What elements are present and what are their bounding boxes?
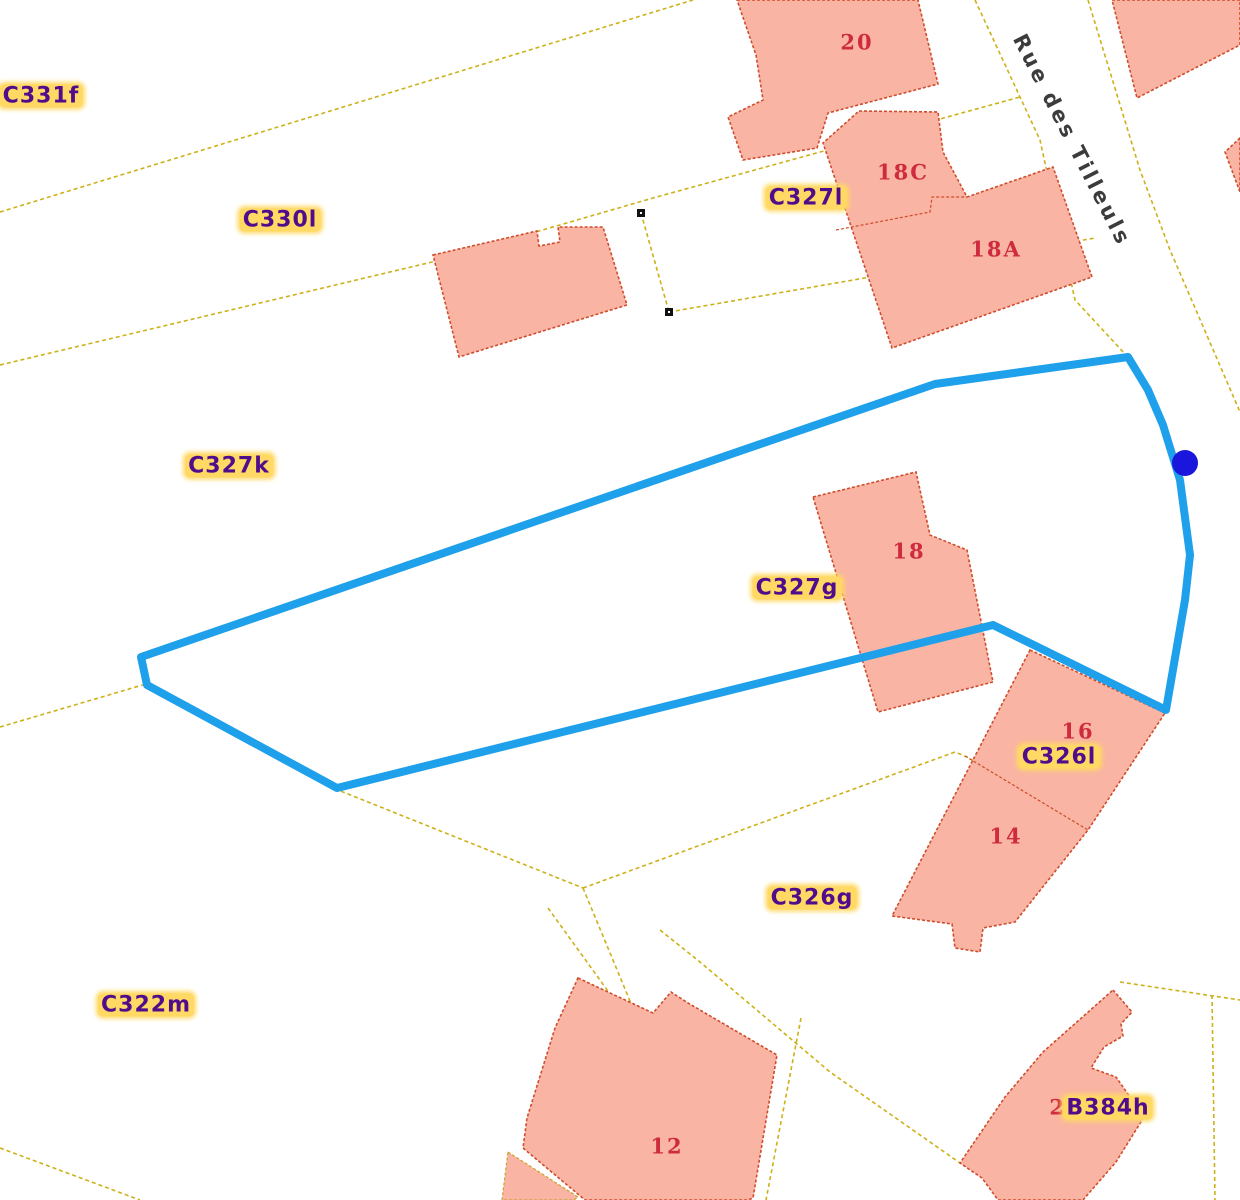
house-number-18: 18 [892,539,925,564]
cadastral-map[interactable]: Rue des Tilleuls C331f C330l C327l C327k… [0,0,1240,1200]
house-number-12: 12 [650,1134,683,1159]
building-sliver-right-edge [1225,138,1240,192]
parcel-boundary-line [766,1018,801,1200]
survey-marker-core [640,212,642,214]
building-unnumbered [433,227,627,357]
parcel-label-c327g: C327g [753,576,842,599]
building-18c-18a [823,111,1092,348]
map-canvas[interactable] [0,0,1240,1200]
parcel-boundary-line [1212,995,1215,1200]
parcel-boundary-line [0,1148,140,1200]
parcel-label-c331f: C331f [0,84,82,107]
house-number-18c: 18C [877,160,929,185]
building-12 [523,978,777,1200]
parcel-boundary-line [0,684,146,727]
survey-marker-core [668,311,670,313]
parcel-boundary-line [1120,982,1240,1000]
parcel-label-c327l: C327l [766,186,847,209]
parcel-boundary-line [641,213,669,312]
parcel-label-c330l: C330l [240,208,321,231]
parcel-label-c322m: C322m [98,993,194,1016]
parcel-boundary-line [328,786,583,888]
house-number-18a: 18A [970,237,1022,262]
building-across-street-top [1112,0,1240,98]
house-number-20: 20 [840,30,873,55]
parcel-label-c327k: C327k [185,454,273,477]
parcel-label-c326g: C326g [768,886,857,909]
selection-point-marker [1172,450,1198,476]
parcel-boundary-line [0,0,693,212]
parcel-label-c326l: C326l [1019,745,1100,768]
house-number-16: 16 [1061,719,1094,744]
house-number-14: 14 [989,824,1022,849]
parcel-label-b384h: B384h [1063,1096,1152,1119]
